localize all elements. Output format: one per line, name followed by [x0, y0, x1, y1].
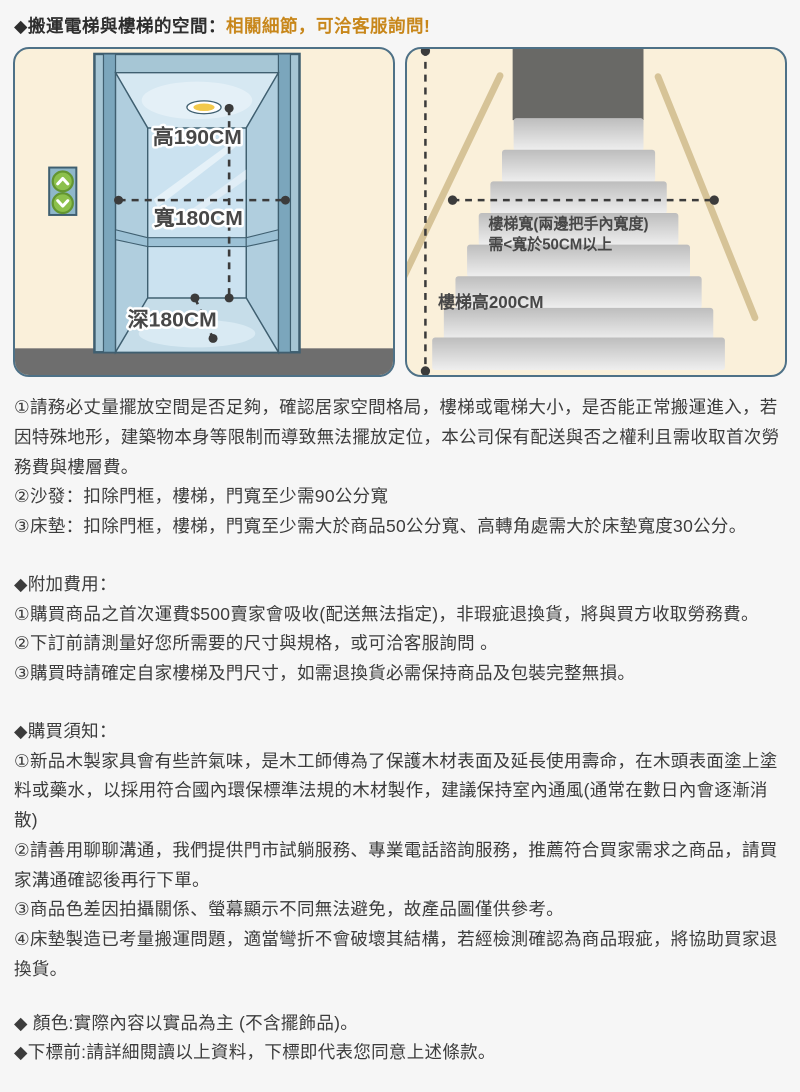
elevator-diagram-card: 高190CM 寬180CM 深180CM — [13, 47, 395, 377]
fees-note-2: ②下訂前請測量好您所需要的尺寸與規格，或可洽客服詢問 。 — [14, 629, 786, 659]
stairs-height-measurement-line — [421, 49, 430, 375]
notes-section: ①請務必丈量擺放空間是否足夠，確認居家空間格局，樓梯或電梯大小，是否能正常搬運進… — [0, 377, 800, 1092]
color-note: ◆ 顏色:實際內容以實品為主 (不含擺飾品)。 — [14, 1009, 786, 1039]
ceiling-light-icon — [187, 101, 221, 114]
fees-note-1: ①購買商品之首次運費$500賣家會吸收(配送無法指定)，非瑕疵退換貨，將與買方收… — [14, 600, 786, 630]
elevator-depth-label: 深180CM — [128, 309, 217, 332]
section-title: ◆搬運電梯與樓梯的空間：相關細節，可洽客服詢問! — [0, 0, 800, 47]
diagrams-row: 高190CM 寬180CM 深180CM — [0, 47, 800, 377]
elevator-handrail — [148, 238, 247, 247]
stairs-doorway — [513, 49, 644, 120]
product-shipping-info-page: ◆搬運電梯與樓梯的空間：相關細節，可洽客服詢問! — [0, 0, 800, 1092]
measure-note-2: ②沙發：扣除門框，樓梯，門寬至少需90公分寬 — [14, 482, 786, 512]
purchase-heading: ◆購買須知： — [14, 717, 786, 747]
purchase-note-2: ②請善用聊聊溝通，我們提供門市試躺服務、專業電話諮詢服務，推薦符合買家需求之商品… — [14, 836, 786, 896]
elevator-width-label: 寬180CM — [154, 206, 243, 230]
down-button-icon — [53, 193, 73, 213]
elevator-call-panel — [49, 168, 76, 215]
stairs-diagram-card: 樓梯寬(兩邊把手內寬度) 需<寬於50CM以上 樓梯高200CM — [405, 47, 787, 377]
up-button-icon — [53, 171, 73, 191]
measure-note-3: ③床墊：扣除門框，樓梯，門寬至少需大於商品50公分寬、高轉角處需大於床墊寬度30… — [14, 512, 786, 542]
purchase-note-3: ③商品色差因拍攝關係、螢幕顯示不同無法避免，故產品圖僅供參考。 — [14, 895, 786, 925]
stairs-width-label-line1: 樓梯寬(兩邊把手內寬度) — [488, 215, 648, 233]
fees-heading: ◆附加費用： — [14, 570, 786, 600]
agreement-note: ◆下標前:請詳細閱讀以上資料，下標即代表您同意上述條款。 — [14, 1038, 786, 1068]
section-title-text: ◆搬運電梯與樓梯的空間： — [14, 16, 226, 36]
purchase-note-4: ④床墊製造已考量搬運問題，適當彎折不會破壞其結構，若經檢測確認為商品瑕疵，將協助… — [14, 925, 786, 985]
elevator-height-label: 高190CM — [153, 125, 242, 149]
purchase-note-1: ①新品木製家具會有些許氣味，是木工師傅為了保護木材表面及延長使用壽命，在木頭表面… — [14, 747, 786, 836]
stairs-height-label: 樓梯高200CM — [438, 292, 543, 312]
section-title-highlight: 相關細節，可洽客服詢問! — [226, 16, 430, 36]
fees-note-3: ③購買時請確定自家樓梯及門尺寸，如需退換貨必需保持商品及包裝完整無損。 — [14, 659, 786, 689]
elevator-illustration: 高190CM 寬180CM 深180CM — [15, 49, 393, 375]
stairs-width-label-line2: 需<寬於50CM以上 — [488, 235, 612, 253]
stairs-illustration: 樓梯寬(兩邊把手內寬度) 需<寬於50CM以上 樓梯高200CM — [407, 49, 785, 375]
measure-note-1: ①請務必丈量擺放空間是否足夠，確認居家空間格局，樓梯或電梯大小，是否能正常搬運進… — [14, 393, 786, 482]
